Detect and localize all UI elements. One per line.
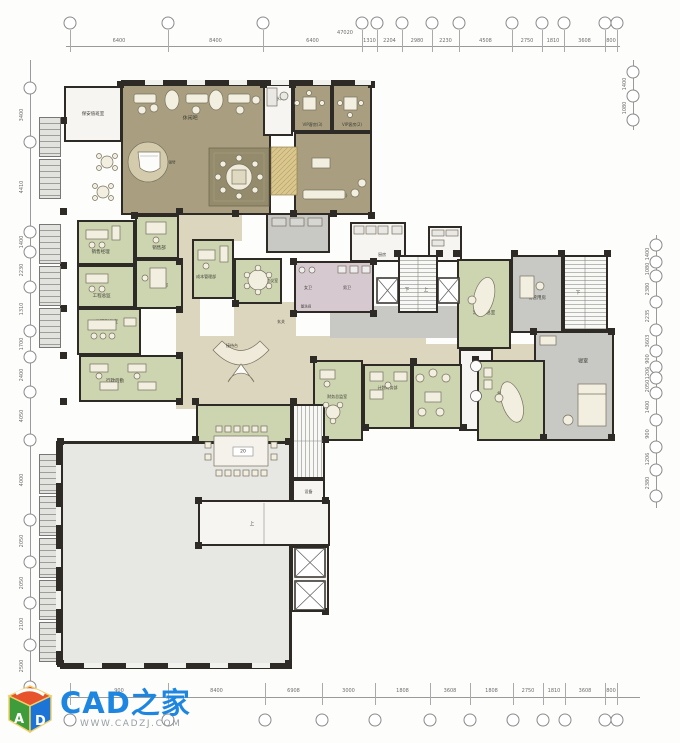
plan-label: 20 <box>240 450 246 455</box>
right-dim-value: 2235 <box>645 310 651 323</box>
top-dim-value: 8400 <box>209 38 222 44</box>
left-dim-value: 1310 <box>19 303 25 316</box>
right-top-dim-value: 1400 <box>622 78 628 91</box>
plan-label: 上 <box>424 287 429 293</box>
top-dim-value: 4508 <box>479 38 492 44</box>
left-dim-value: 2100 <box>19 618 25 631</box>
top-dim-value: 800 <box>606 38 616 44</box>
right-dim-value: 2380 <box>645 283 651 296</box>
top-dim-value: 1810 <box>547 38 560 44</box>
plan-label: 钢琴 <box>169 161 176 166</box>
svg-text:A: A <box>14 712 24 727</box>
watermark-url: WWW.CADZJ.COM <box>80 720 191 729</box>
bottom-dim-value: 3608 <box>579 688 592 694</box>
top-dim-value: 2980 <box>411 38 424 44</box>
bottom-dim-value: 3608 <box>444 688 457 694</box>
plan-label: 接待台 <box>226 343 238 349</box>
top-dim-total: 47020 <box>337 30 353 36</box>
right-dim-value: 1400 <box>645 400 651 413</box>
left-dim-value: 1400 <box>19 236 25 249</box>
top-dim-value: 3608 <box>578 38 591 44</box>
right-top-dim-value: 1080 <box>622 102 628 115</box>
svg-text:D: D <box>35 714 46 729</box>
floorplan-page: 保安值班室休闲吧茶水间VIP客房(3)VIP客房(2)VIP客房(1)销售经理销… <box>0 0 680 743</box>
label-layer: 6400840064001310220429802230450827501810… <box>0 0 680 743</box>
left-dim-value: 4410 <box>19 181 25 194</box>
plan-label: 下 <box>405 287 410 293</box>
plan-label: 男卫 <box>343 285 351 291</box>
bottom-dim-value: 6908 <box>287 688 300 694</box>
right-dim-value: 2380 <box>645 477 651 490</box>
right-dim-value: 1080 <box>645 263 651 276</box>
right-dim-value: 900 <box>645 354 651 364</box>
top-dim-value: 6400 <box>306 38 319 44</box>
bottom-dim-value: 1810 <box>548 688 561 694</box>
left-dim-value: 4050 <box>19 410 25 423</box>
bottom-dim-value: 2750 <box>522 688 535 694</box>
watermark: A D CAD之家 WWW.CADZJ.COM <box>6 683 191 735</box>
top-dim-value: 6400 <box>113 38 126 44</box>
left-dim-value: 2400 <box>19 368 25 381</box>
watermark-brand: CAD之家 <box>60 689 191 718</box>
left-dim-value: 3400 <box>19 109 25 122</box>
plan-label: 盥洗间 <box>301 305 312 310</box>
left-dim-value: 4000 <box>19 474 25 487</box>
left-dim-value: 1700 <box>19 338 25 351</box>
plan-label: 下 <box>576 290 581 296</box>
right-dim-value: 3603 <box>645 334 651 347</box>
right-dim-value: 900 <box>645 429 651 439</box>
left-dim-value: 2500 <box>19 660 25 673</box>
plan-label: 上 <box>250 521 255 527</box>
cad-cube-logo-icon: A D <box>6 683 54 735</box>
right-dim-value: 2050 <box>645 379 651 392</box>
left-dim-value: 2050 <box>19 535 25 548</box>
left-dim-value: 2230 <box>19 263 25 276</box>
bottom-dim-value: 8400 <box>210 688 223 694</box>
top-dim-value: 1310 <box>363 38 376 44</box>
bottom-dim-value: 3000 <box>342 688 355 694</box>
right-dim-value: 1206 <box>645 452 651 465</box>
bottom-dim-value: 800 <box>606 688 616 694</box>
right-dim-value: 1206 <box>645 366 651 379</box>
top-dim-value: 2750 <box>521 38 534 44</box>
right-dim-value: 1400 <box>645 247 651 260</box>
top-dim-value: 2230 <box>439 38 452 44</box>
top-dim-value: 2204 <box>383 38 396 44</box>
bottom-dim-value: 1808 <box>485 688 498 694</box>
left-dim-value: 2050 <box>19 576 25 589</box>
plan-label: 玄关 <box>277 319 285 325</box>
bottom-dim-value: 1808 <box>396 688 409 694</box>
plan-label: 女卫 <box>304 285 312 291</box>
